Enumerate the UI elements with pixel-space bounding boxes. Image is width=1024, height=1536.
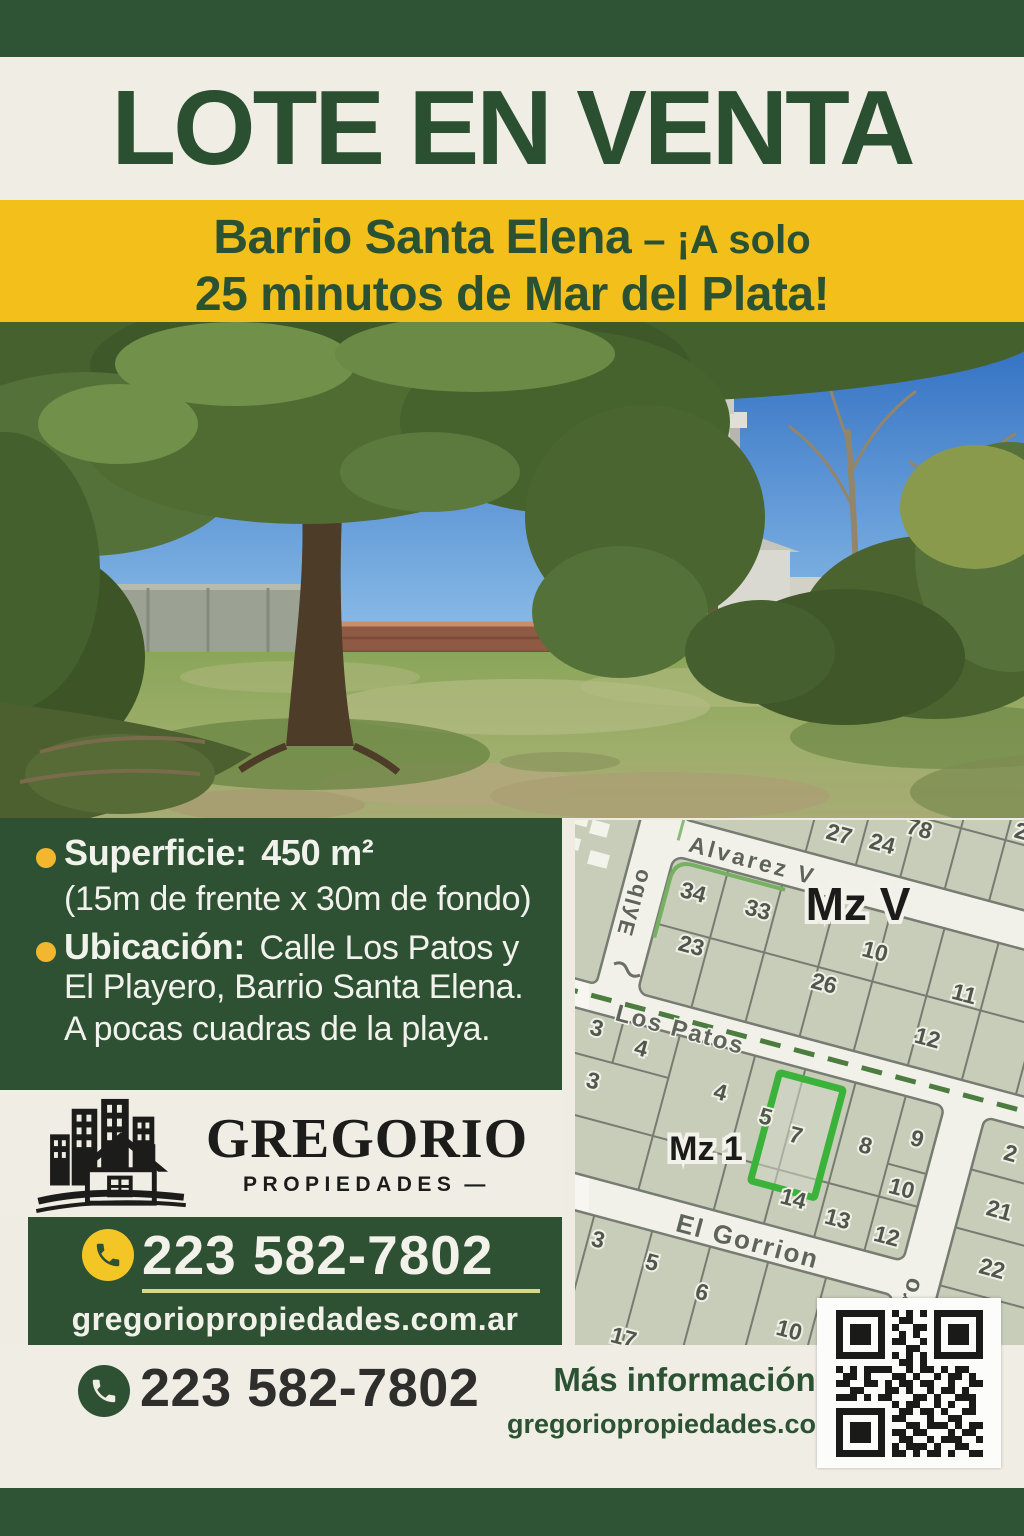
qr-code: [817, 1298, 1001, 1468]
phone-icon: [82, 1229, 134, 1281]
surface-label: Superficie:: [64, 832, 247, 873]
subtitle-band: Barrio Santa Elena– ¡A solo 25 minutos d…: [0, 200, 1024, 322]
bullet-icon: [36, 848, 56, 868]
brand-logo-icon: [34, 1095, 192, 1213]
website: gregoriopropiedades.com.ar: [28, 1301, 562, 1338]
subtitle-line1: Barrio Santa Elena– ¡A solo: [0, 210, 1024, 265]
phone-number: 223 582-7802: [140, 1357, 479, 1419]
map-label-mz-v: Mz V: [806, 878, 911, 930]
map-label-mz-1: Mz 1: [669, 1130, 743, 1168]
surface-row: Superficie: 450 m²: [64, 832, 373, 874]
surface-value: 450 m²: [261, 832, 373, 873]
phone-icon: [78, 1365, 130, 1417]
subtitle-neighborhood: Barrio Santa Elena: [213, 211, 631, 264]
details-panel: Superficie: 450 m² (15m de frente x 30m …: [0, 818, 562, 1090]
location-line3: A pocas cuadras de la playa.: [64, 1010, 490, 1049]
subtitle-tagline: – ¡A solo: [643, 218, 810, 262]
brand-tagline-row: PROPIEDADES —: [206, 1173, 528, 1197]
phone-number: 223 582-7802: [142, 1223, 493, 1287]
lower-section: Superficie: 450 m² (15m de frente x 30m …: [0, 818, 1024, 1536]
brand-text: GREGORIO PROPIEDADES —: [206, 1111, 528, 1197]
lot-photo: [0, 322, 1024, 818]
surface-note: (15m de frente x 30m de fondo): [64, 880, 531, 919]
phone-band: 223 582-7802 gregoriopropiedades.com.ar: [28, 1217, 562, 1345]
brand-name: GREGORIO: [206, 1111, 528, 1167]
brand-tagline: PROPIEDADES: [243, 1173, 456, 1197]
brand-card: GREGORIO PROPIEDADES —: [0, 1090, 562, 1217]
location-line1: Calle Los Patos y: [259, 929, 518, 967]
location-line2: El Playero, Barrio Santa Elena.: [64, 968, 523, 1007]
subtitle-line2: 25 minutos de Mar del Plata!: [0, 267, 1024, 322]
location-label: Ubicación:: [64, 926, 245, 967]
page-title: LOTE EN VENTA: [111, 68, 912, 189]
title-band: LOTE EN VENTA: [0, 57, 1024, 200]
phone-underline: [142, 1289, 540, 1293]
bottom-green-bar: [0, 1488, 1024, 1536]
brand-tagline-dash: —: [464, 1173, 491, 1197]
location-row: Ubicación: Calle Los Patos y: [64, 926, 519, 968]
top-green-bar: [0, 0, 1024, 57]
real-estate-flyer: LOTE EN VENTA Barrio Santa Elena– ¡A sol…: [0, 0, 1024, 1536]
location-map: Alvarez V Los Patos El Gorrion Playero Ǝ…: [575, 820, 1024, 1348]
more-info-label: Más información:: [520, 1361, 860, 1399]
bullet-icon: [36, 942, 56, 962]
